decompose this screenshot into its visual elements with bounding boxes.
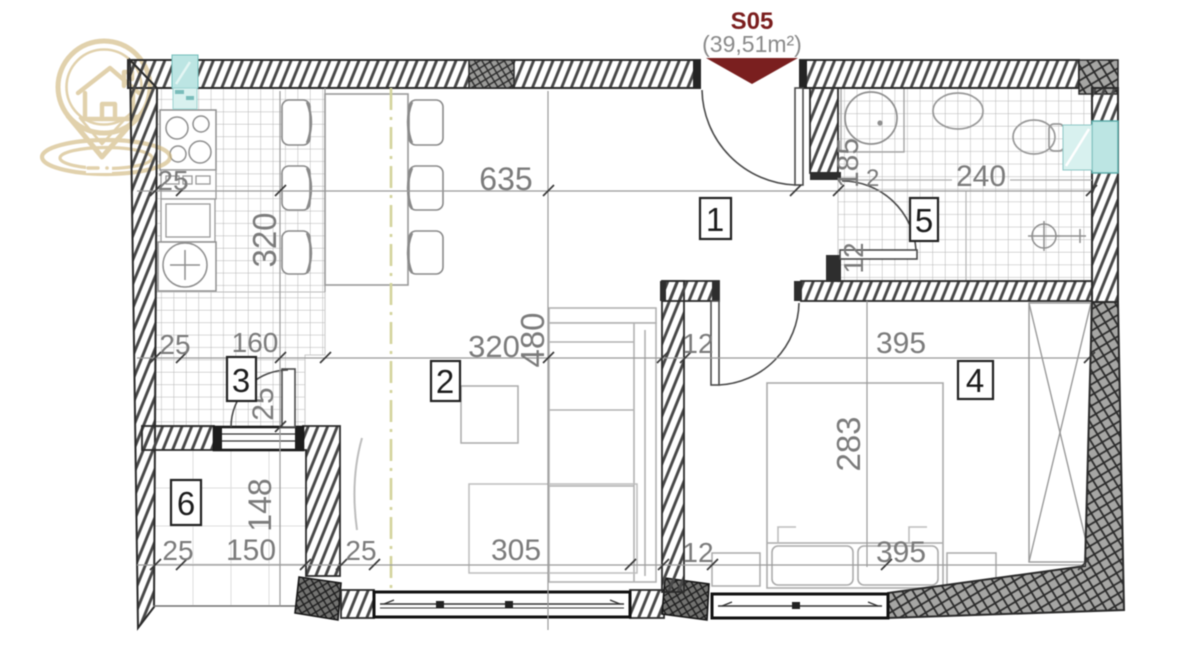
svg-text:395: 395 xyxy=(876,536,926,569)
svg-text:2: 2 xyxy=(866,165,879,192)
svg-text:12: 12 xyxy=(838,242,869,273)
svg-text:1: 1 xyxy=(706,201,724,238)
svg-text:635: 635 xyxy=(479,161,532,197)
svg-text:25: 25 xyxy=(159,329,190,360)
svg-text:148: 148 xyxy=(242,478,278,531)
svg-text:25: 25 xyxy=(157,165,188,196)
svg-text:25: 25 xyxy=(162,535,193,566)
svg-text:6: 6 xyxy=(177,485,195,522)
svg-text:25: 25 xyxy=(345,535,376,566)
svg-text:185: 185 xyxy=(832,138,865,188)
svg-text:(39,51m²): (39,51m²) xyxy=(702,31,802,57)
svg-text:480: 480 xyxy=(514,312,551,367)
svg-text:320: 320 xyxy=(468,329,520,364)
svg-text:150: 150 xyxy=(226,534,276,567)
svg-text:12: 12 xyxy=(682,537,713,568)
svg-text:305: 305 xyxy=(491,534,541,567)
svg-text:320: 320 xyxy=(246,212,283,267)
svg-text:2: 2 xyxy=(436,363,454,400)
svg-text:160: 160 xyxy=(232,327,279,358)
svg-text:3: 3 xyxy=(232,362,250,399)
svg-text:395: 395 xyxy=(876,327,926,360)
svg-text:4: 4 xyxy=(966,362,984,399)
svg-text:283: 283 xyxy=(830,416,867,471)
svg-text:12: 12 xyxy=(682,328,713,359)
svg-text:5: 5 xyxy=(915,202,933,239)
svg-text:240: 240 xyxy=(956,160,1006,193)
